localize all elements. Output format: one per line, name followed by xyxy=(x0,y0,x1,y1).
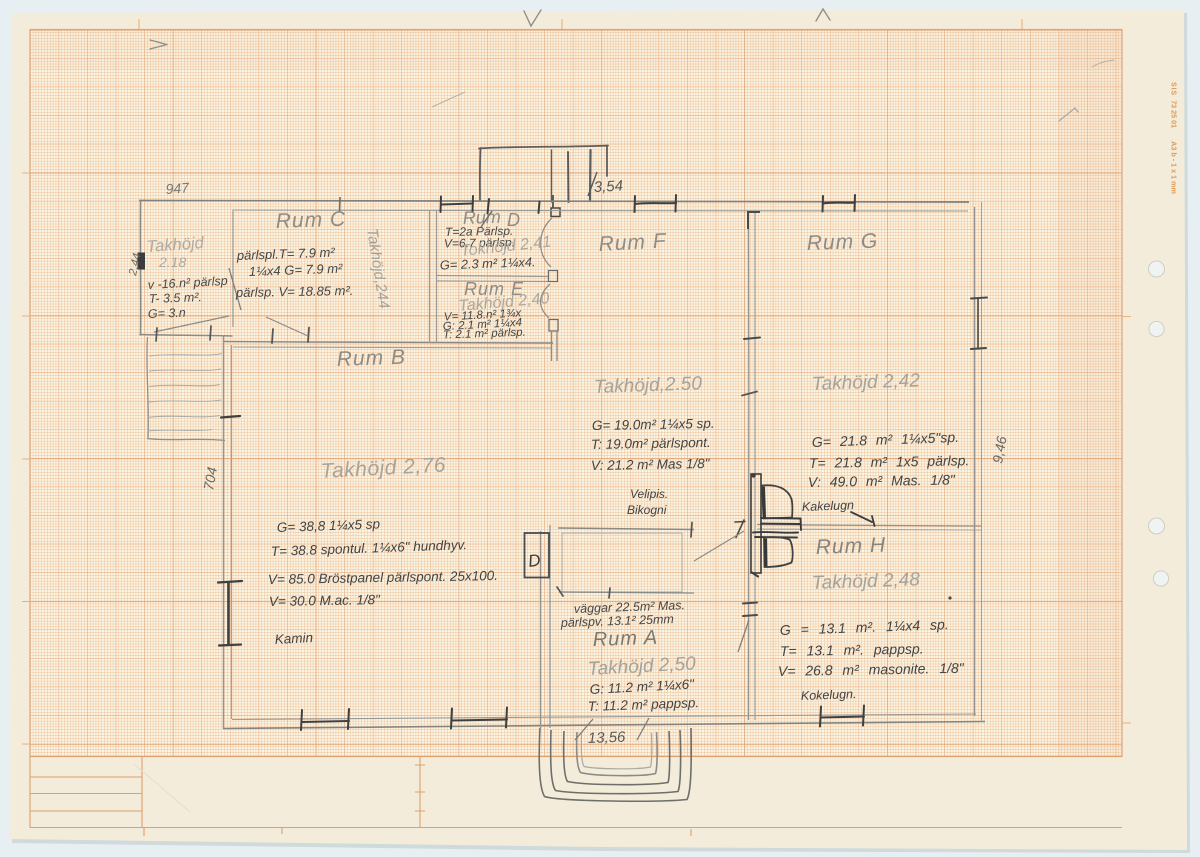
svg-text:Kamin: Kamin xyxy=(274,630,313,647)
svg-text:Rum A: Rum A xyxy=(592,627,658,651)
svg-text:D: D xyxy=(527,550,542,571)
svg-text:T= 21.8 m² 1x5 pärlsp.: T= 21.8 m² 1x5 pärlsp. xyxy=(809,452,970,471)
svg-text:Rum H: Rum H xyxy=(815,534,886,559)
svg-text:947: 947 xyxy=(165,179,191,197)
svg-text:G= 19.0m² 1¼x5 sp.: G= 19.0m² 1¼x5 sp. xyxy=(592,416,715,433)
svg-text:Rum C: Rum C xyxy=(275,208,346,233)
svg-text:T- 3.5 m².: T- 3.5 m². xyxy=(149,290,202,306)
svg-text:Takhöjd,2.50: Takhöjd,2.50 xyxy=(593,373,702,398)
svg-text:2.18: 2.18 xyxy=(158,254,186,270)
svg-text:V: 21.2 m² Mas 1/8": V: 21.2 m² Mas 1/8" xyxy=(591,456,711,473)
svg-text:T: 19.0m² pärlspont.: T: 19.0m² pärlspont. xyxy=(591,435,711,452)
svg-text:Takhöjd 2,48: Takhöjd 2,48 xyxy=(811,569,920,594)
svg-text:Rum G: Rum G xyxy=(806,230,878,255)
svg-text:V= 30.0 M.ac. 1/8": V= 30.0 M.ac. 1/8" xyxy=(269,592,381,609)
svg-text:T= 13.1 m². pappsp.: T= 13.1 m². pappsp. xyxy=(780,640,924,659)
svg-text:pärlsp. V= 18.85 m².: pärlsp. V= 18.85 m². xyxy=(235,283,354,300)
svg-text:Bikogni: Bikogni xyxy=(627,503,667,517)
svg-text:Rum B: Rum B xyxy=(336,346,406,371)
svg-text:V: 49.0 m² Mas. 1/8": V: 49.0 m² Mas. 1/8" xyxy=(808,471,956,490)
svg-text:Rum F: Rum F xyxy=(598,229,667,256)
svg-text:G= 3.n: G= 3.n xyxy=(148,306,186,321)
svg-text:3,54: 3,54 xyxy=(593,177,623,196)
svg-text:Takhöjd 2,42: Takhöjd 2,42 xyxy=(811,370,920,395)
svg-text:13,56: 13,56 xyxy=(588,729,627,747)
svg-text:Velipis.: Velipis. xyxy=(630,487,668,501)
svg-text:V= 26.8 m² masonite. 1/8": V= 26.8 m² masonite. 1/8" xyxy=(778,660,965,679)
svg-text:Kakelugn: Kakelugn xyxy=(802,498,855,514)
svg-text:Kokelugn.: Kokelugn. xyxy=(801,687,857,703)
